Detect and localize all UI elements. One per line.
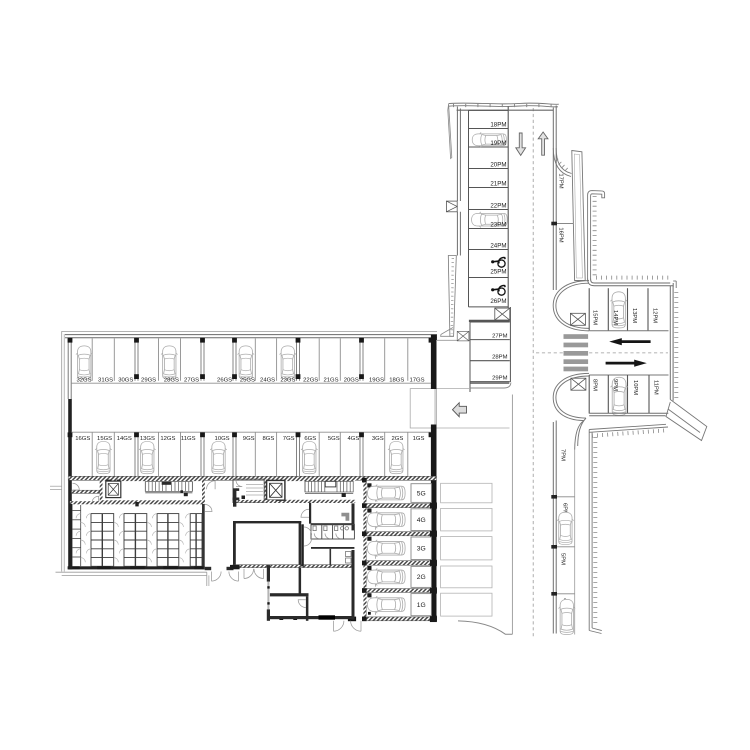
- svg-text:22PM: 22PM: [490, 202, 506, 209]
- svg-text:15GS: 15GS: [97, 436, 112, 442]
- svg-text:11PM: 11PM: [652, 380, 658, 395]
- svg-text:1GS: 1GS: [413, 436, 425, 442]
- svg-text:14GS: 14GS: [117, 436, 132, 442]
- svg-text:17GS: 17GS: [409, 377, 424, 383]
- svg-text:19PM: 19PM: [490, 140, 506, 147]
- svg-text:7PM: 7PM: [560, 449, 566, 461]
- svg-text:16PM: 16PM: [557, 227, 563, 242]
- svg-text:5GS: 5GS: [328, 436, 340, 442]
- svg-text:28PM: 28PM: [492, 355, 507, 361]
- svg-text:25PM: 25PM: [490, 269, 506, 276]
- svg-text:13PM: 13PM: [631, 308, 637, 323]
- svg-text:23GS: 23GS: [280, 377, 295, 383]
- svg-text:7GS: 7GS: [283, 436, 295, 442]
- svg-text:10GS: 10GS: [215, 436, 230, 442]
- svg-text:27GS: 27GS: [184, 377, 199, 383]
- svg-text:17PM: 17PM: [557, 173, 563, 188]
- svg-text:8GS: 8GS: [263, 436, 275, 442]
- svg-text:28GS: 28GS: [164, 377, 179, 383]
- svg-text:12PM: 12PM: [651, 308, 657, 323]
- svg-text:15PM: 15PM: [592, 310, 598, 325]
- svg-text:9PM: 9PM: [612, 379, 618, 391]
- svg-text:5G: 5G: [417, 490, 426, 497]
- svg-text:3G: 3G: [417, 546, 426, 553]
- svg-text:14PM: 14PM: [612, 310, 618, 325]
- svg-text:3GS: 3GS: [372, 436, 384, 442]
- svg-text:24PM: 24PM: [490, 243, 506, 250]
- svg-text:9GS: 9GS: [243, 436, 255, 442]
- svg-text:2G: 2G: [417, 574, 426, 581]
- svg-text:18GS: 18GS: [389, 377, 404, 383]
- svg-text:1G: 1G: [417, 602, 426, 609]
- svg-text:25GS: 25GS: [240, 377, 255, 383]
- svg-text:16GS: 16GS: [75, 436, 90, 442]
- svg-text:19GS: 19GS: [369, 377, 384, 383]
- svg-text:24GS: 24GS: [260, 377, 275, 383]
- svg-text:21GS: 21GS: [323, 377, 338, 383]
- svg-text:2GS: 2GS: [392, 436, 404, 442]
- svg-text:26GS: 26GS: [217, 377, 232, 383]
- svg-text:29PM: 29PM: [492, 375, 507, 381]
- svg-text:29GS: 29GS: [141, 377, 156, 383]
- svg-text:21PM: 21PM: [490, 180, 506, 187]
- svg-text:20GS: 20GS: [344, 377, 359, 383]
- svg-text:22GS: 22GS: [303, 377, 318, 383]
- svg-text:10PM: 10PM: [632, 380, 638, 395]
- svg-text:12GS: 12GS: [160, 436, 175, 442]
- svg-text:4G: 4G: [417, 517, 426, 524]
- svg-text:23PM: 23PM: [490, 222, 506, 229]
- svg-text:27PM: 27PM: [492, 334, 507, 340]
- svg-text:26PM: 26PM: [490, 298, 506, 305]
- svg-text:31GS: 31GS: [98, 377, 113, 383]
- svg-text:4GS: 4GS: [348, 436, 360, 442]
- svg-text:18PM: 18PM: [490, 122, 506, 129]
- svg-text:8PM: 8PM: [592, 379, 598, 391]
- svg-text:30GS: 30GS: [118, 377, 133, 383]
- svg-text:32GS: 32GS: [76, 377, 91, 383]
- svg-text:6GS: 6GS: [304, 436, 316, 442]
- svg-text:20PM: 20PM: [490, 161, 506, 168]
- svg-text:13GS: 13GS: [140, 436, 155, 442]
- svg-text:5PM: 5PM: [560, 553, 566, 565]
- svg-text:11GS: 11GS: [181, 436, 196, 442]
